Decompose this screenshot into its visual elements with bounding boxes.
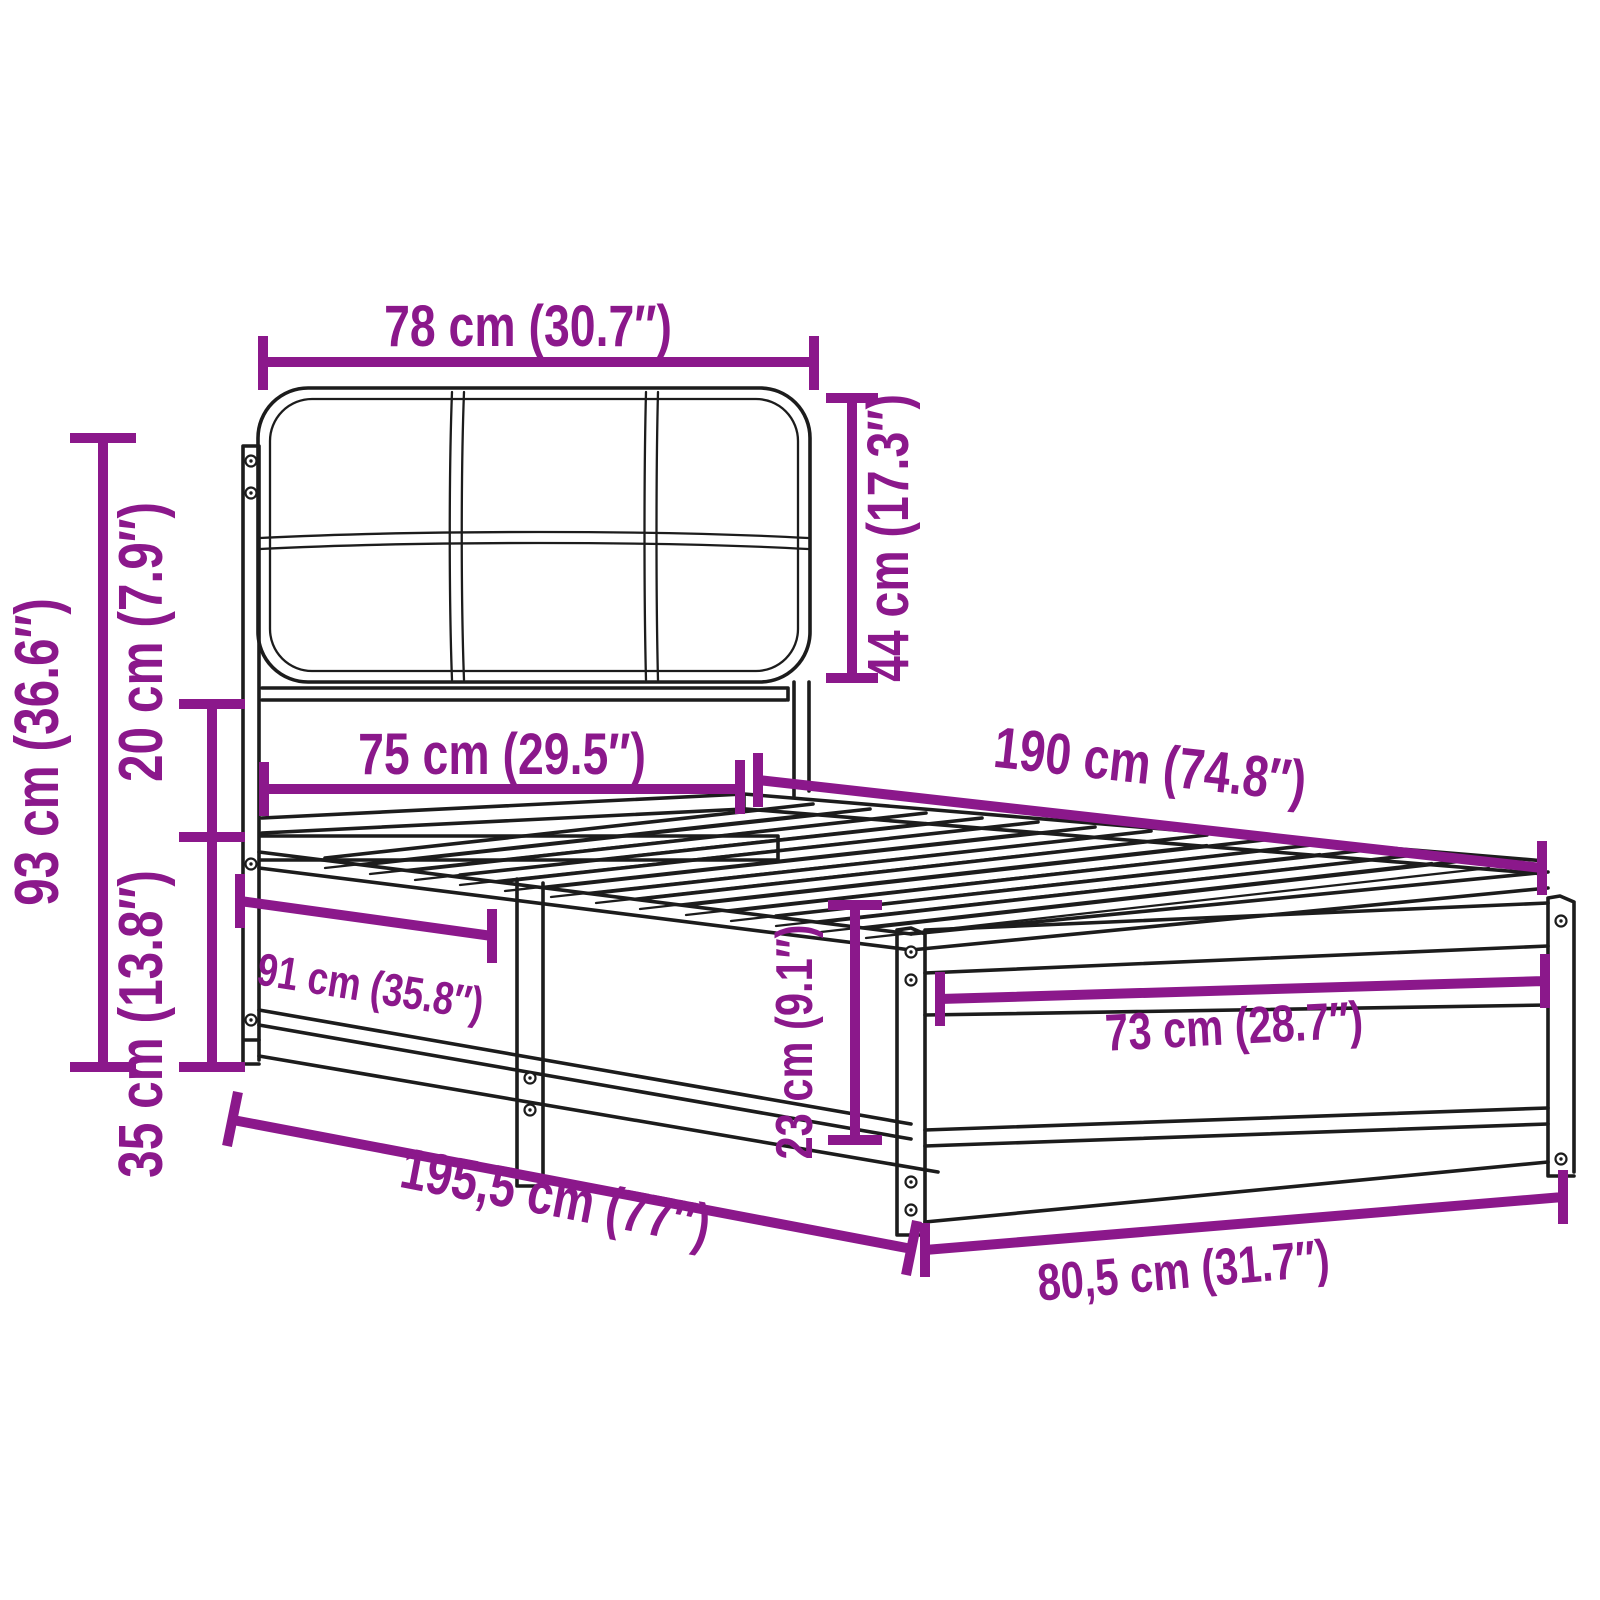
dim-base-height-label: 35 cm (13.8″) (106, 870, 176, 1178)
dim-side-rail-section: 91 cm (35.8″) (240, 874, 492, 1030)
dimension-annotations: 78 cm (30.7″) 44 cm (17.3″) 93 cm (36.6″… (2, 294, 1563, 1312)
dim-cushion-gap-height-label: 20 cm (7.9″) (106, 502, 176, 782)
footboard-far-post (1548, 896, 1574, 1176)
dim-headboard-cushion-height: 44 cm (17.3″) (826, 394, 921, 682)
footboard-near-post (897, 928, 925, 1235)
dim-cushion-gap-height: 20 cm (7.9″) (106, 502, 245, 837)
dim-headboard-width: 78 cm (30.7″) (263, 294, 814, 390)
cushion-seam-vertical-1 (450, 392, 464, 680)
dim-inner-width-head-label: 75 cm (29.5″) (358, 722, 646, 787)
dim-headboard-cushion-height-label: 44 cm (17.3″) (856, 394, 921, 682)
dim-inner-length-label: 190 cm (74.8″) (991, 715, 1310, 815)
slats-edges (325, 814, 1489, 938)
cushion-seam-vertical-2 (645, 392, 659, 680)
headboard-right-post (794, 682, 809, 796)
dim-headboard-width-label: 78 cm (30.7″) (384, 294, 672, 359)
footboard-panel (925, 903, 1548, 1222)
bed-dimension-diagram: 78 cm (30.7″) 44 cm (17.3″) 93 cm (36.6″… (0, 0, 1600, 1600)
headboard-cushion (258, 388, 810, 682)
dim-headboard-total-height-label: 93 cm (36.6″) (2, 598, 72, 906)
diagram-canvas: 78 cm (30.7″) 44 cm (17.3″) 93 cm (36.6″… (0, 0, 1600, 1600)
dim-inner-width-head: 75 cm (29.5″) (264, 722, 740, 816)
middle-support-leg (517, 879, 543, 1186)
headboard-shelf (262, 688, 788, 700)
dim-base-height: 35 cm (13.8″) (106, 837, 245, 1178)
dim-total-length-label: 195,5 cm (77″) (395, 1136, 715, 1259)
cushion-seam-horizontal (260, 532, 808, 549)
head-end-top-edge (262, 794, 744, 833)
dim-foot-rail-height-label: 23 cm (9.1″) (765, 925, 824, 1160)
dim-inner-width-foot-label: 73 cm (28.7″) (1104, 990, 1365, 1062)
